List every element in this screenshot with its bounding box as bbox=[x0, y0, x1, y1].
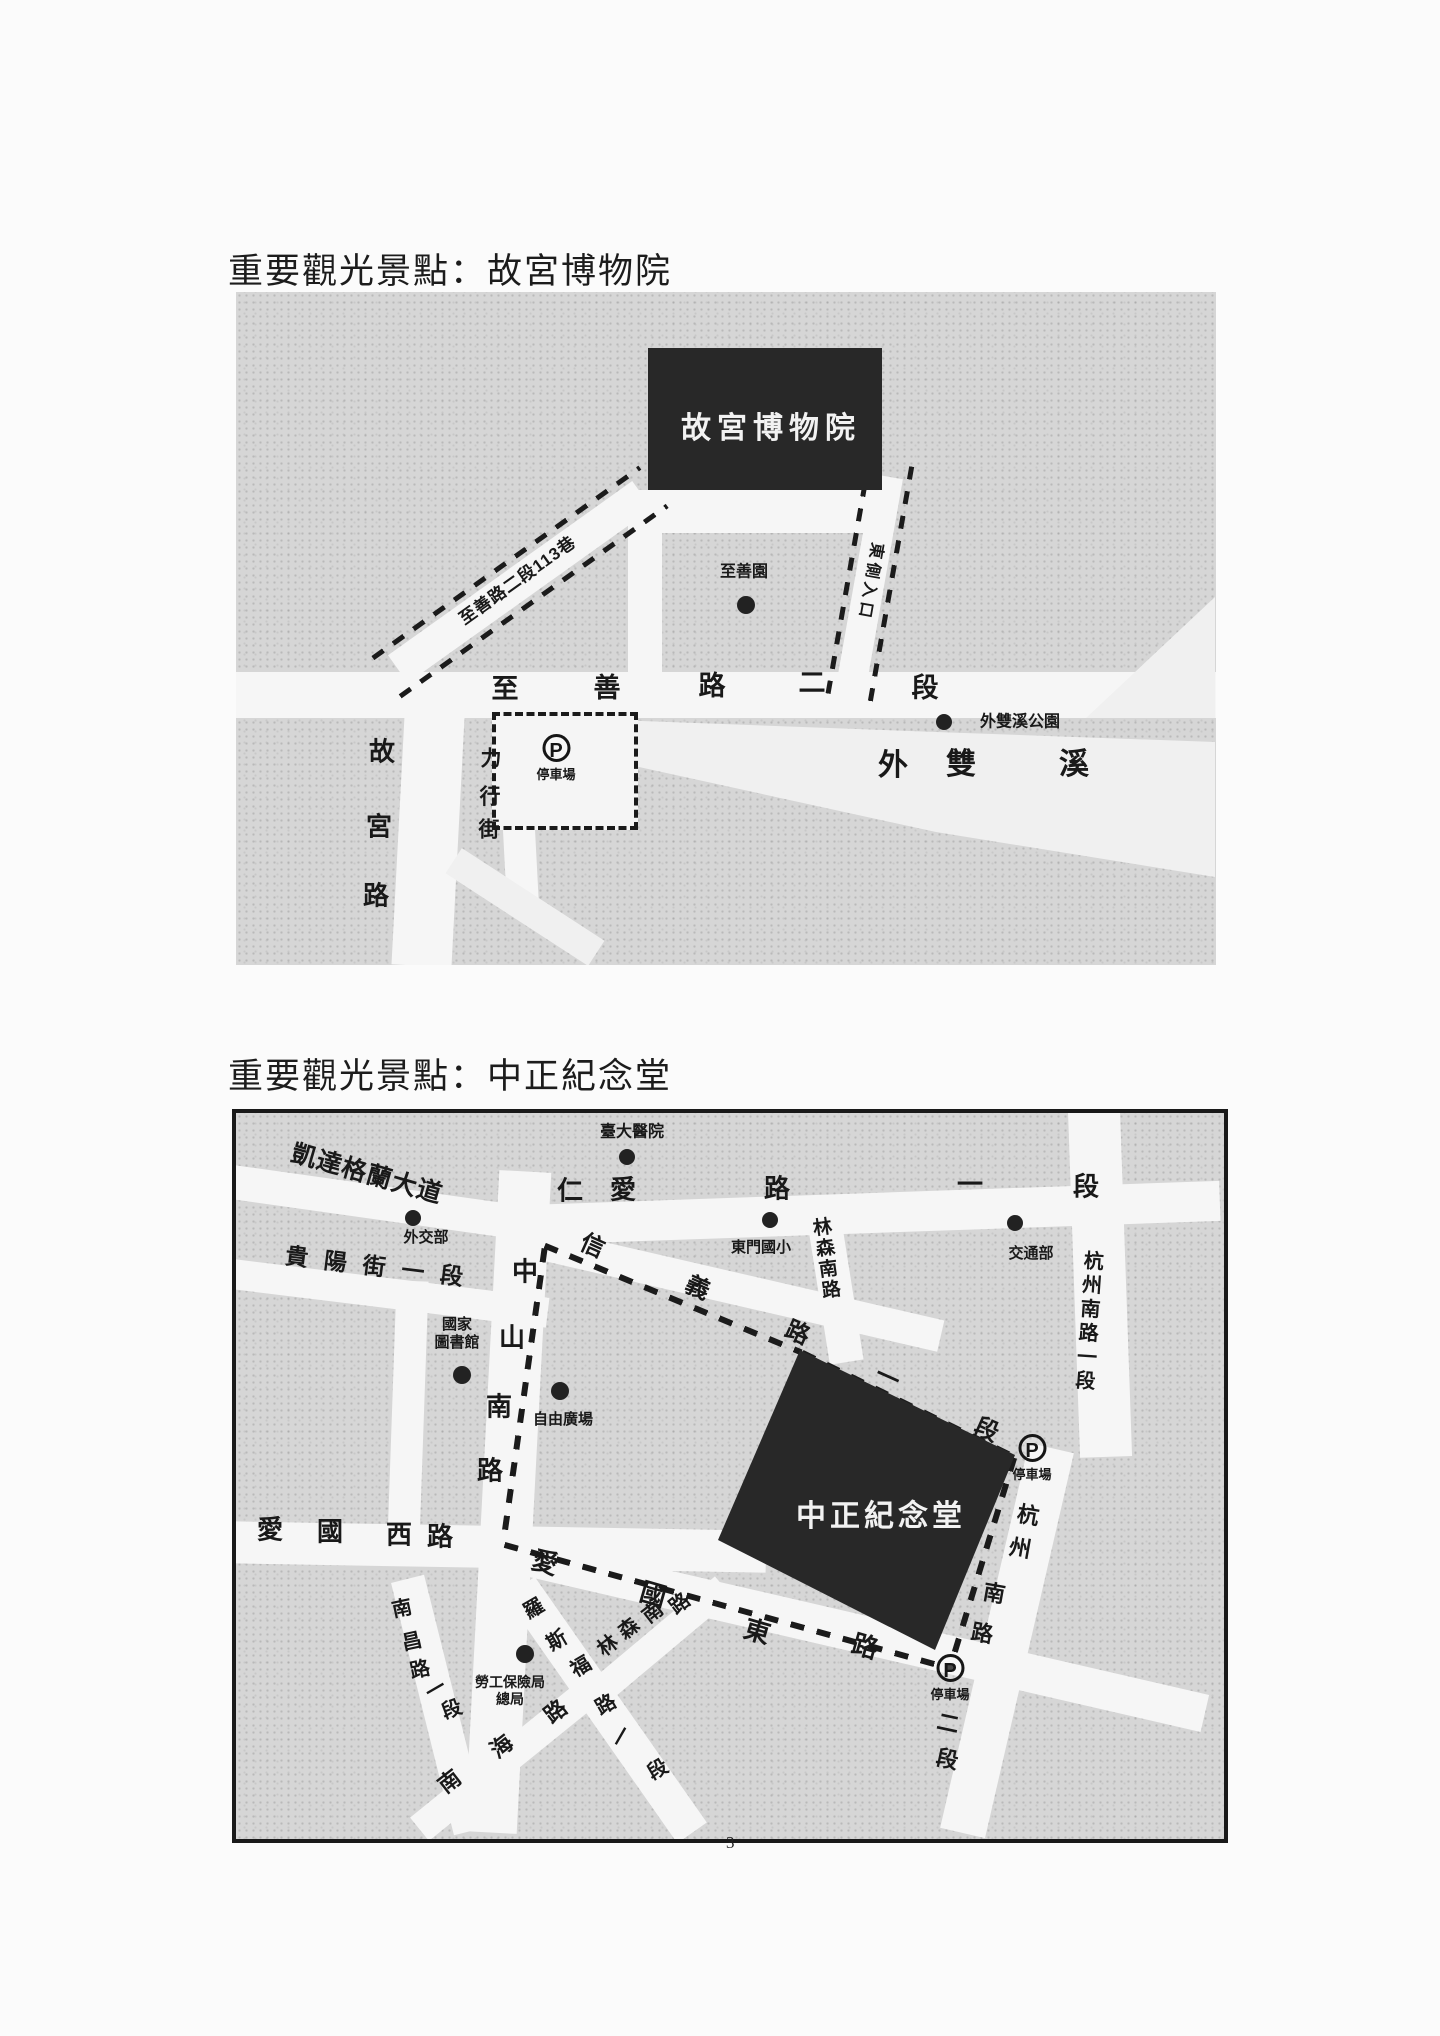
road-char-lixing-st: 力 bbox=[481, 746, 502, 771]
lane-dash-edge bbox=[371, 466, 641, 661]
road-char-gugong-rd: 路 bbox=[363, 880, 389, 911]
road-char-zhongshan-s: 南 bbox=[486, 1391, 512, 1422]
road-char-zhishan-rd: 路 bbox=[699, 670, 726, 702]
road-aiguo-west bbox=[232, 1521, 766, 1572]
label-ntu-hospital: 臺大醫院 bbox=[600, 1122, 664, 1141]
river-char-waishuangxi: 溪 bbox=[1059, 747, 1089, 783]
road-char-zhishan-rd: 善 bbox=[594, 672, 621, 704]
dot-labor-insurance bbox=[516, 1645, 534, 1663]
cks-memorial-map: 中正紀念堂臺大醫院凱達格蘭大道仁愛路一段外交部東門國小交通部杭州南路一段貴陽街一… bbox=[232, 1109, 1228, 1843]
road-char-renai-rd: 段 bbox=[1073, 1171, 1099, 1202]
section-heading-palace-museum: 重要觀光景點：故宮博物院 bbox=[228, 243, 672, 294]
label-liberty-square: 自由廣場 bbox=[533, 1411, 593, 1429]
road-gugong bbox=[391, 715, 464, 965]
dot-ntu-hospital bbox=[619, 1149, 635, 1165]
dot-mofa bbox=[405, 1210, 421, 1226]
parking-icon: P bbox=[542, 734, 570, 762]
label-mofa: 外交部 bbox=[403, 1229, 448, 1247]
label-labor-insurance-bureau: 勞工保險局總局 bbox=[475, 1674, 545, 1708]
museum-forecourt-horizontal bbox=[643, 490, 883, 533]
parking-label: 停車場 bbox=[930, 1684, 969, 1703]
label-zhishan-garden: 至善園 bbox=[720, 562, 768, 581]
label-waishuangxi-park: 外雙溪公園 bbox=[980, 712, 1060, 731]
road-char-hangzhou-mid: 州 bbox=[1007, 1534, 1033, 1564]
road-char-renai-rd: 一 bbox=[957, 1169, 983, 1200]
dot-national-library bbox=[453, 1366, 471, 1384]
label-cks-memorial: 中正紀念堂 bbox=[796, 1499, 966, 1535]
road-char-gugong-rd: 宮 bbox=[366, 811, 392, 842]
road-char-zhishan-rd: 至 bbox=[492, 673, 519, 705]
parking-icon: P bbox=[936, 1654, 964, 1682]
label-national-library: 國家圖書館 bbox=[434, 1316, 479, 1352]
road-char-hangzhou-mid: 杭 bbox=[1015, 1501, 1041, 1531]
river-char-waishuangxi: 外 bbox=[878, 748, 908, 784]
dot-motc bbox=[1007, 1215, 1023, 1231]
road-char-lixing-st: 街 bbox=[479, 817, 500, 842]
label-dongmen-school: 東門國小 bbox=[731, 1239, 791, 1257]
parking-label: 停車場 bbox=[1012, 1464, 1051, 1483]
road-char-aiguo-w: 國 bbox=[317, 1516, 343, 1547]
road-char-gugong-rd: 故 bbox=[369, 736, 395, 767]
label-palace-museum: 故宮博物院 bbox=[681, 411, 861, 447]
road-char-hangzhou-mid: 路 bbox=[969, 1619, 995, 1649]
road-char-zhishan-rd: 段 bbox=[912, 672, 939, 704]
parking-label: 停車場 bbox=[536, 764, 575, 783]
waishuangxi-river bbox=[536, 707, 1216, 887]
road-char-aiguo-w: 路 bbox=[427, 1521, 453, 1552]
palace-museum-map: 故宮博物院至善路二段113巷東側入口至善園至善路二段外雙溪公園外雙溪故宮路力行街… bbox=[236, 292, 1216, 965]
dot-dongmen-school bbox=[762, 1212, 778, 1228]
road-char-zhongshan-s: 中 bbox=[512, 1256, 538, 1287]
scanned-document-page: { "page": {"number": "3"}, "sections": [… bbox=[0, 0, 1440, 2036]
road-gongyuan bbox=[387, 1281, 428, 1544]
dot-waishuangxi-park bbox=[936, 714, 952, 730]
road-char-hangzhou-2: 二 bbox=[934, 1709, 961, 1739]
road-char-lixing-st: 行 bbox=[480, 784, 501, 809]
road-char-aiguo-w: 西 bbox=[386, 1519, 412, 1550]
road-char-zhishan-rd: 二 bbox=[799, 667, 826, 699]
road-char-aiguo-w: 愛 bbox=[257, 1514, 283, 1545]
road-char-hangzhou-mid: 南 bbox=[981, 1579, 1007, 1609]
dot-liberty-square bbox=[551, 1382, 569, 1400]
road-char-renai-rd: 路 bbox=[764, 1173, 790, 1204]
parking-icon: P bbox=[1018, 1434, 1046, 1462]
parking-aiguo-east: P停車場 bbox=[930, 1654, 969, 1703]
road-char-renai-rd: 愛 bbox=[610, 1174, 636, 1205]
page-number: 3 bbox=[726, 1833, 735, 1853]
road-char-zhongshan-s: 路 bbox=[477, 1455, 503, 1486]
road-char-zhongshan-s: 山 bbox=[499, 1322, 525, 1353]
parking-zhishan: P停車場 bbox=[536, 734, 575, 783]
dot-zhishan-garden bbox=[737, 596, 755, 614]
road-char-renai-rd: 仁 bbox=[557, 1175, 583, 1206]
river-char-waishuangxi: 雙 bbox=[946, 747, 976, 783]
label-motc: 交通部 bbox=[1008, 1245, 1053, 1263]
road-main-zhishan bbox=[236, 672, 1216, 718]
parking-hangzhou: P停車場 bbox=[1012, 1434, 1051, 1483]
section-heading-cks-memorial: 重要觀光景點：中正紀念堂 bbox=[228, 1048, 672, 1099]
